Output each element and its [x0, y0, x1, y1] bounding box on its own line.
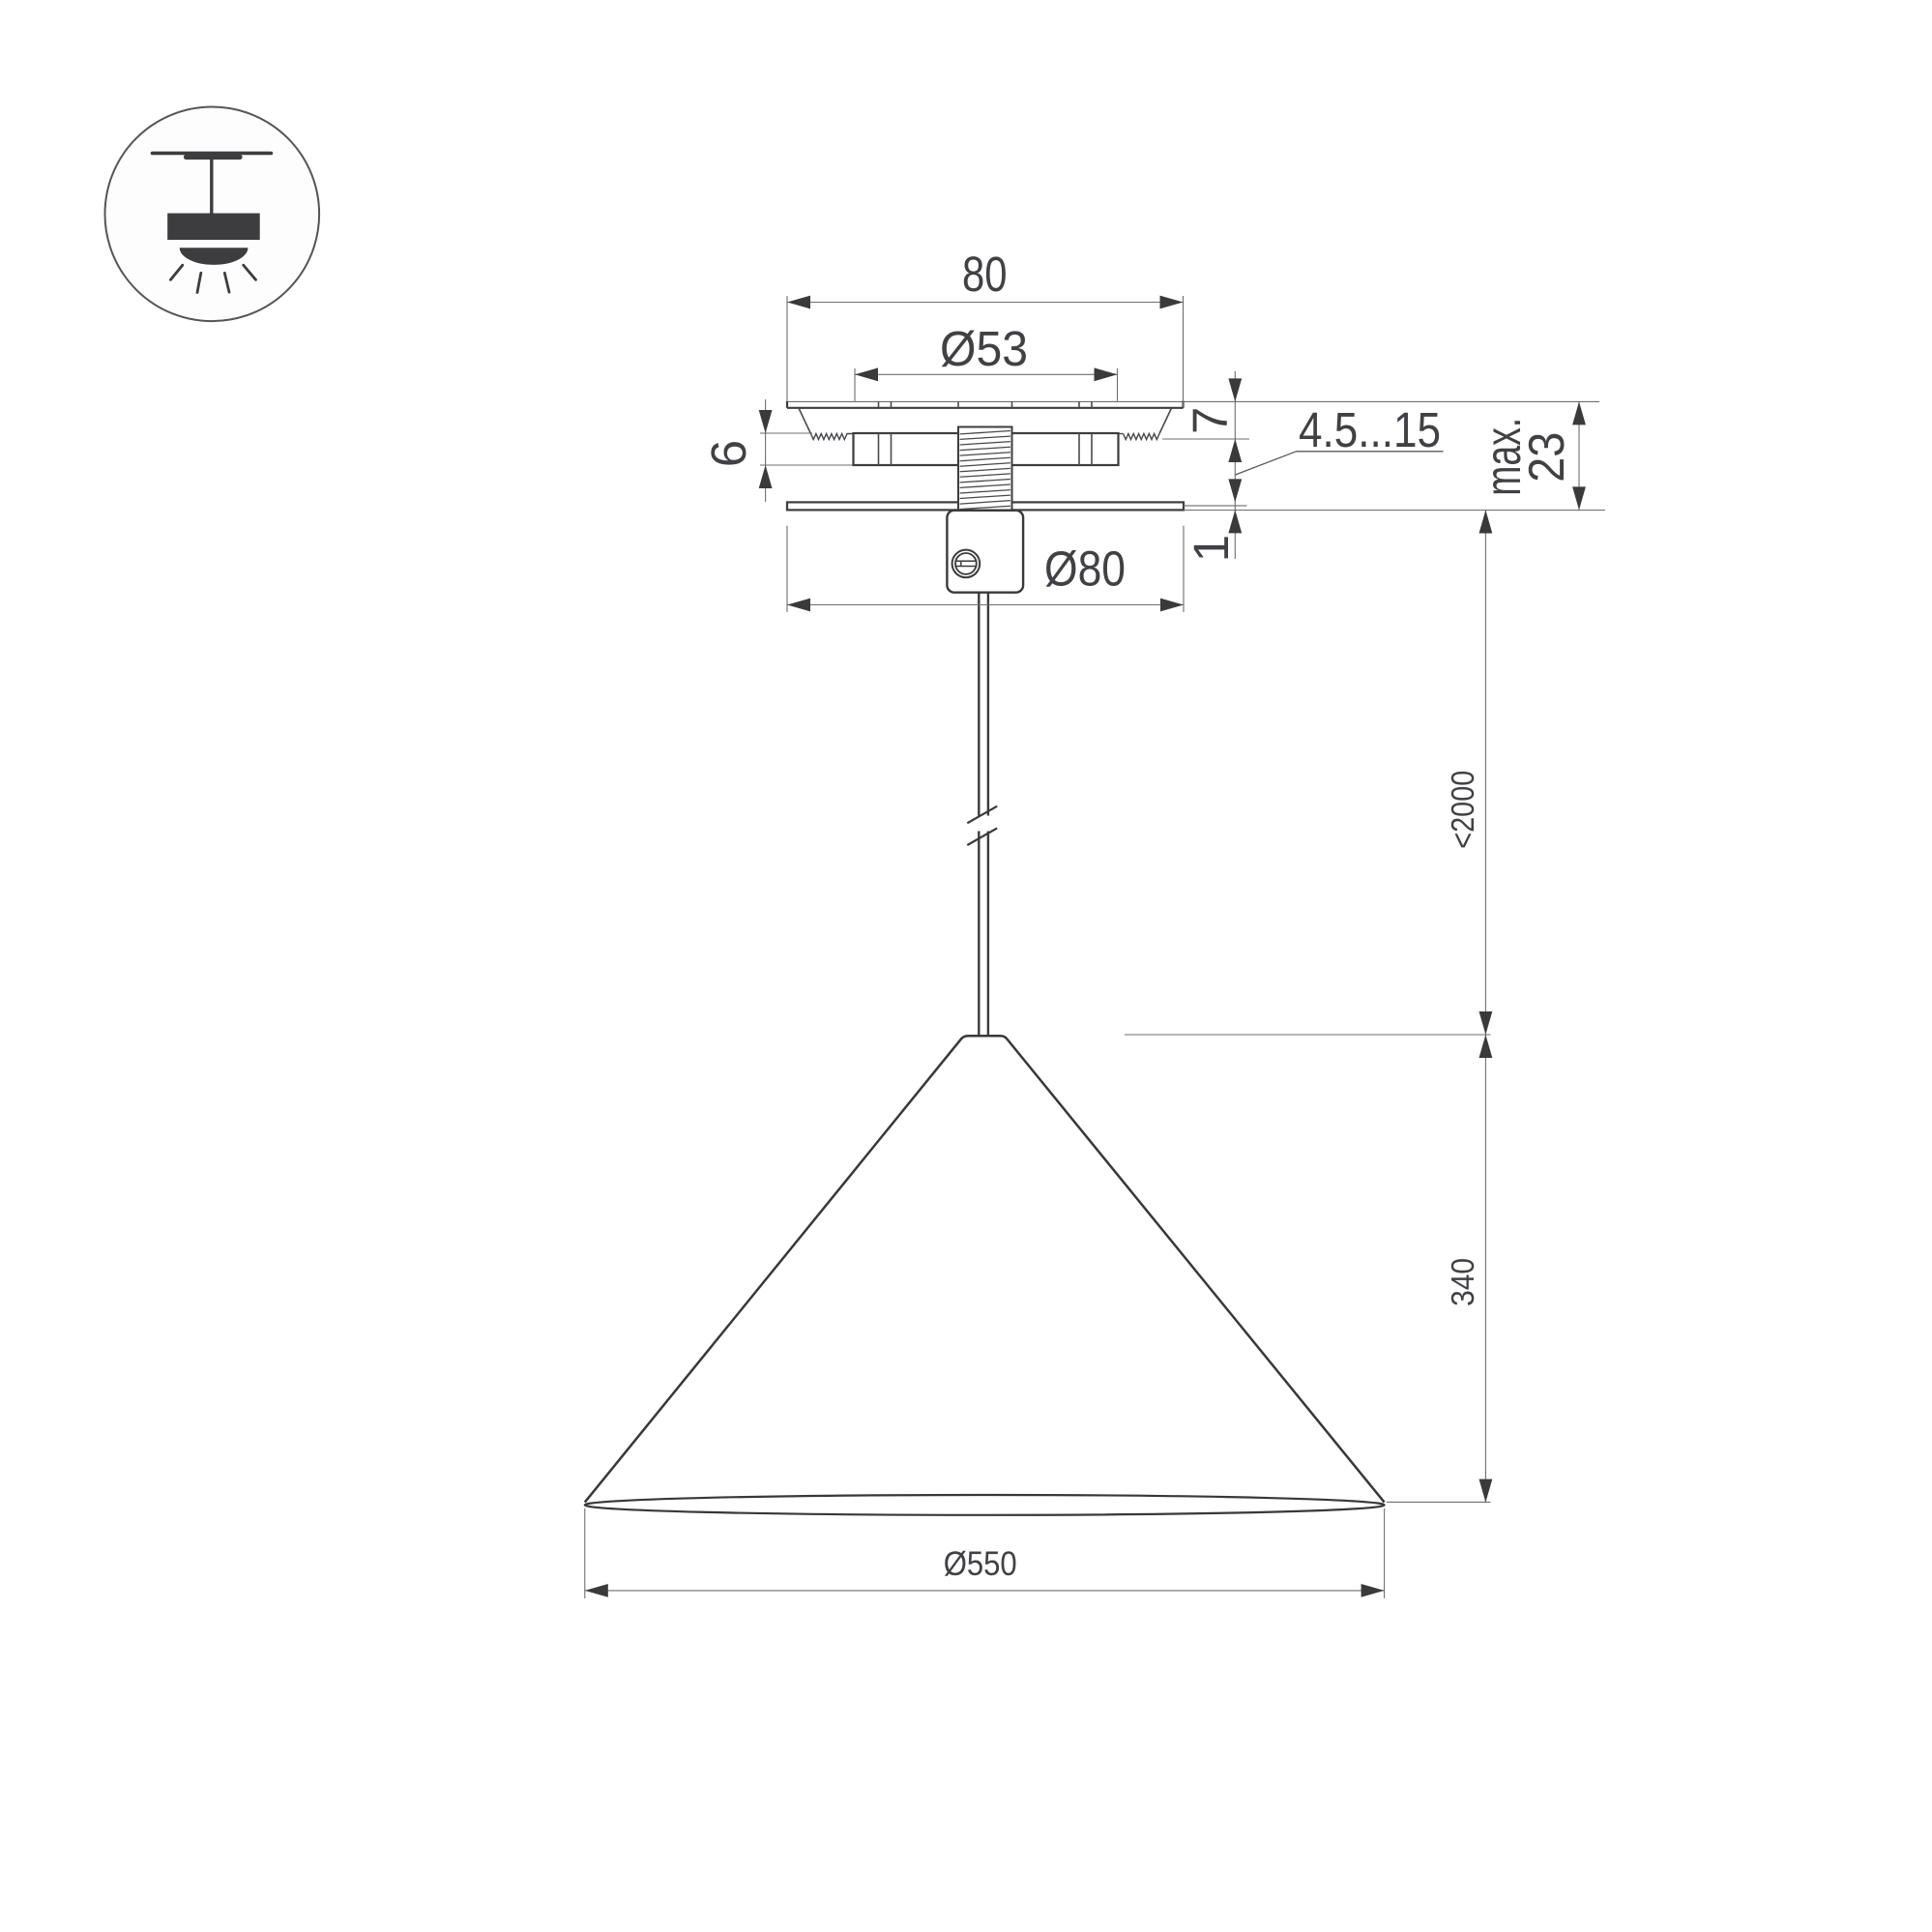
svg-text:7: 7	[1183, 407, 1238, 434]
svg-text:<2000: <2000	[1445, 771, 1480, 849]
svg-text:23: 23	[1519, 432, 1575, 483]
svg-text:1: 1	[1184, 535, 1239, 562]
svg-text:6: 6	[701, 440, 756, 467]
svg-text:Ø53: Ø53	[940, 321, 1028, 376]
svg-text:80: 80	[962, 247, 1008, 302]
svg-text:Ø550: Ø550	[944, 1545, 1017, 1583]
svg-text:340: 340	[1445, 1258, 1480, 1306]
svg-text:4.5...15: 4.5...15	[1299, 402, 1441, 457]
svg-text:Ø80: Ø80	[1044, 542, 1126, 597]
